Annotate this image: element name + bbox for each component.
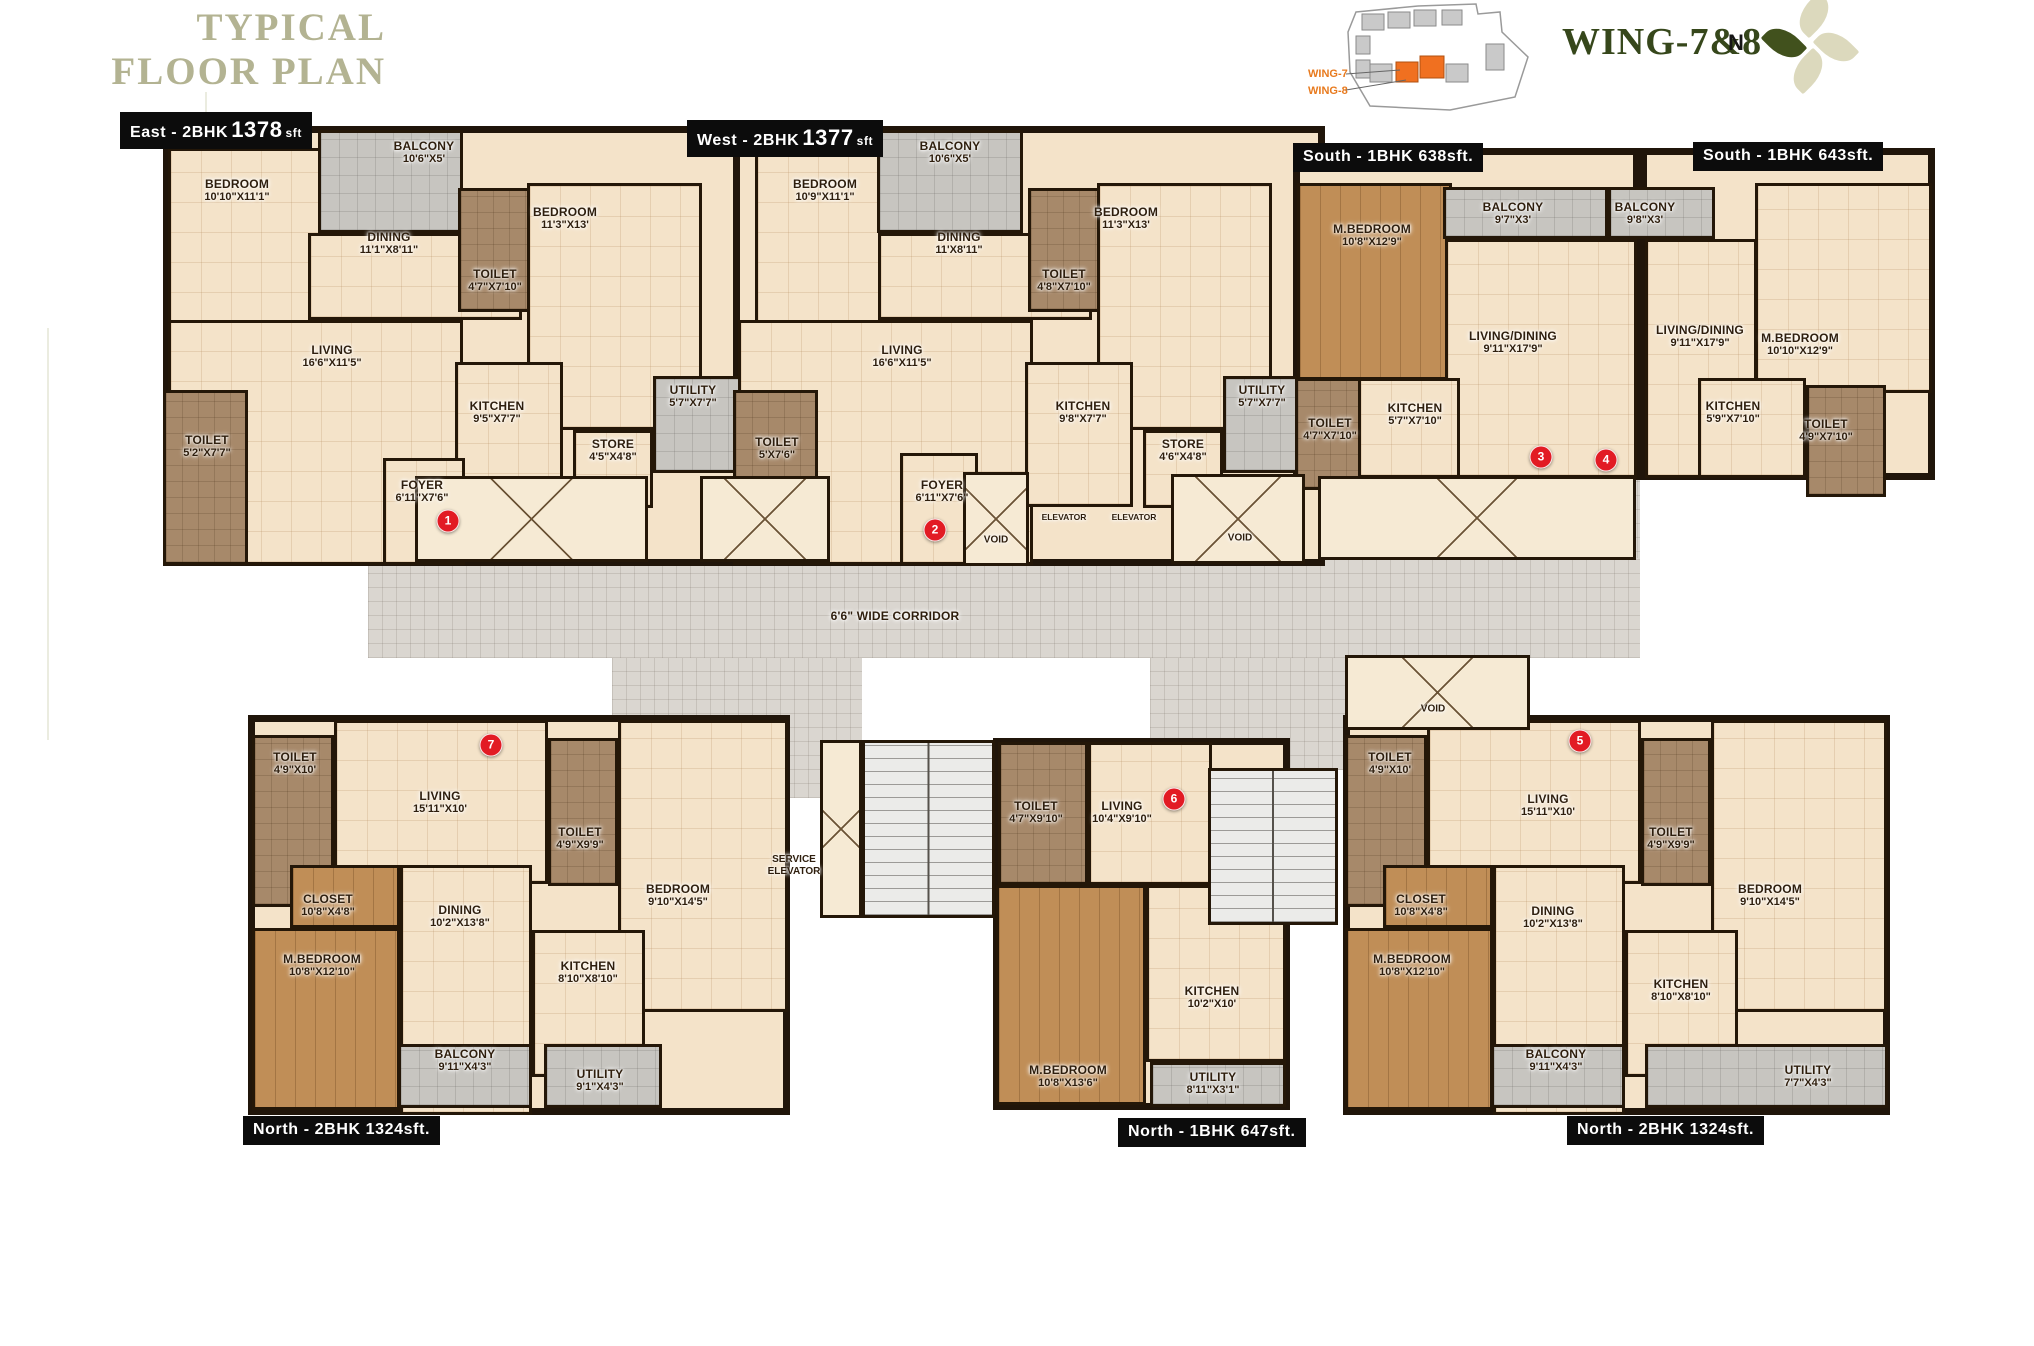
unit-plate-west: West - 2BHK1377sft bbox=[687, 120, 883, 157]
room-label-east-store: STORE4'5"X4'8" bbox=[589, 437, 636, 463]
room-east-toilet bbox=[163, 390, 248, 565]
room-label-s638-balcony: BALCONY9'7"X3' bbox=[1483, 200, 1544, 226]
room-label-n5-bedroom: BEDROOM9'10"X14'5" bbox=[1738, 882, 1802, 908]
room-label-west-foyer: FOYER6'11"X7'6" bbox=[916, 478, 969, 504]
room-label-n7-living: LIVING15'11"X10' bbox=[413, 789, 467, 815]
room-label-east-toilet: TOILET4'7"X7'10" bbox=[468, 267, 522, 293]
room-s638-kitchen bbox=[1358, 378, 1460, 478]
room-label-west-toilet: TOILET4'8"X7'10" bbox=[1037, 267, 1091, 293]
room-label-n5-utility: UTILITY7'7"X4'3" bbox=[1784, 1063, 1831, 1089]
open-box-2 bbox=[700, 476, 830, 562]
room-s638-m-bedroom bbox=[1297, 183, 1452, 380]
room-label-east-utility: UTILITY5'7"X7'7" bbox=[669, 383, 716, 409]
room-label-east-toilet: TOILET5'2"X7'7" bbox=[183, 433, 230, 459]
room-label-west-kitchen: KITCHEN9'8"X7'7" bbox=[1056, 399, 1111, 425]
room-label-s638-toilet: TOILET4'7"X7'10" bbox=[1303, 416, 1357, 442]
room-label-n7-closet: CLOSET10'8"X4'8" bbox=[301, 892, 355, 918]
room-s643-kitchen bbox=[1698, 378, 1806, 478]
room-label-east-living: LIVING16'6"X11'5" bbox=[302, 343, 361, 369]
unit-badge-2: 2 bbox=[924, 519, 947, 542]
void-bottom-label: VOID bbox=[1421, 704, 1445, 715]
room-label-n7-balcony: BALCONY9'11"X4'3" bbox=[435, 1047, 496, 1073]
room-n5-utility bbox=[1645, 1044, 1888, 1108]
room-label-west-toilet: TOILET5'X7'6" bbox=[755, 435, 799, 461]
room-label-n7-toilet: TOILET4'9"X10' bbox=[273, 750, 317, 776]
floor-plan-canvas: 6'6" WIDE CORRIDORBEDROOM10'10"X11'1"BAL… bbox=[0, 0, 2034, 1346]
unit-plate-n1324b: North - 2BHK 1324sft. bbox=[1567, 1116, 1764, 1145]
void-right bbox=[1171, 474, 1305, 564]
keyplan-wing7-label: WING-7 bbox=[1308, 68, 1348, 80]
room-label-n5-kitchen: KITCHEN8'10"X8'10" bbox=[1651, 977, 1711, 1003]
void-left-label: VOID bbox=[984, 535, 1008, 546]
room-label-n5-living: LIVING15'11"X10' bbox=[1521, 792, 1575, 818]
room-label-s643-balcony: BALCONY9'8"X3' bbox=[1615, 200, 1676, 226]
room-label-n6-living: LIVING10'4"X9'10" bbox=[1092, 799, 1152, 825]
stairs-right bbox=[1208, 768, 1338, 925]
room-label-east-bedroom: BEDROOM10'10"X11'1" bbox=[204, 177, 269, 203]
void-right-label: VOID bbox=[1228, 533, 1252, 544]
unit-plate-n1324a: North - 2BHK 1324sft. bbox=[243, 1116, 440, 1145]
room-label-east-dining: DINING11'1"X8'11" bbox=[360, 230, 419, 256]
room-west-toilet bbox=[1028, 188, 1100, 312]
room-label-n6-toilet: TOILET4'7"X9'10" bbox=[1009, 799, 1063, 825]
service-elevator-label: SERVICE ELEVATOR bbox=[755, 854, 833, 878]
room-label-s638-kitchen: KITCHEN5'7"X7'10" bbox=[1388, 401, 1443, 427]
unit-badge-3: 3 bbox=[1530, 446, 1553, 469]
unit-badge-4: 4 bbox=[1595, 449, 1618, 472]
room-n5-toilet bbox=[1641, 738, 1711, 886]
unit-badge-1: 1 bbox=[437, 510, 460, 533]
room-label-n7-utility: UTILITY9'1"X4'3" bbox=[576, 1067, 623, 1093]
room-s638-living-dining bbox=[1445, 239, 1637, 478]
room-label-s638-living-dining: LIVING/DINING9'11"X17'9" bbox=[1469, 329, 1557, 355]
unit-plate-n647: North - 1BHK 647sft. bbox=[1118, 1118, 1306, 1147]
room-label-n5-closet: CLOSET10'8"X4'8" bbox=[1394, 892, 1448, 918]
room-label-n5-toilet: TOILET4'9"X10' bbox=[1368, 750, 1412, 776]
void-left bbox=[963, 472, 1029, 566]
room-label-n6-m-bedroom: M.BEDROOM10'8"X13'6" bbox=[1029, 1063, 1107, 1089]
room-n7-toilet bbox=[548, 738, 618, 886]
room-label-n5-toilet: TOILET4'9"X9'9" bbox=[1647, 825, 1694, 851]
room-label-east-bedroom: BEDROOM11'3"X13' bbox=[533, 205, 597, 231]
room-label-east-kitchen: KITCHEN9'5"X7'7" bbox=[470, 399, 525, 425]
floor-plan-page: TYPICAL FLOOR PLAN WING-7&8 N WING-7 WIN… bbox=[0, 0, 2034, 1346]
void-bottom bbox=[1345, 655, 1530, 730]
corridor-label: 6'6" WIDE CORRIDOR bbox=[831, 609, 960, 623]
room-label-n6-utility: UTILITY8'11"X3'1" bbox=[1187, 1070, 1240, 1096]
unit-plate-s643: South - 1BHK 643sft. bbox=[1693, 142, 1883, 171]
corridor-area-corridor-main bbox=[368, 558, 1640, 658]
unit-badge-7: 7 bbox=[480, 734, 503, 757]
room-label-west-store: STORE4'6"X4'8" bbox=[1159, 437, 1206, 463]
room-label-n7-kitchen: KITCHEN8'10"X8'10" bbox=[558, 959, 618, 985]
unit-plate-s638: South - 1BHK 638sft. bbox=[1293, 143, 1483, 172]
room-label-s643-m-bedroom: M.BEDROOM10'10"X12'9" bbox=[1761, 331, 1839, 357]
room-label-east-foyer: FOYER6'11"X7'6" bbox=[396, 478, 449, 504]
room-label-n5-balcony: BALCONY9'11"X4'3" bbox=[1526, 1047, 1587, 1073]
room-label-n7-bedroom: BEDROOM9'10"X14'5" bbox=[646, 882, 710, 908]
room-label-n7-toilet: TOILET4'9"X9'9" bbox=[556, 825, 603, 851]
room-label-west-utility: UTILITY5'7"X7'7" bbox=[1238, 383, 1285, 409]
room-label-west-balcony: BALCONY10'6"X5' bbox=[920, 139, 981, 165]
room-label-s643-living-dining: LIVING/DINING9'11"X17'9" bbox=[1656, 323, 1744, 349]
room-s643-m-bedroom bbox=[1755, 183, 1932, 393]
room-label-n7-m-bedroom: M.BEDROOM10'8"X12'10" bbox=[283, 952, 361, 978]
room-label-east-balcony: BALCONY10'6"X5' bbox=[394, 139, 455, 165]
room-label-s643-toilet: TOILET4'9"X7'10" bbox=[1799, 417, 1853, 443]
room-label-n7-dining: DINING10'2"X13'8" bbox=[430, 903, 490, 929]
elevator-1-label: ELEVATOR bbox=[1042, 512, 1087, 522]
elevator-2-label: ELEVATOR bbox=[1112, 512, 1157, 522]
room-label-n5-m-bedroom: M.BEDROOM10'8"X12'10" bbox=[1373, 952, 1451, 978]
room-label-west-living: LIVING16'6"X11'5" bbox=[872, 343, 931, 369]
unit-badge-5: 5 bbox=[1569, 730, 1592, 753]
room-east-toilet bbox=[458, 188, 530, 312]
room-label-west-bedroom: BEDROOM11'3"X13' bbox=[1094, 205, 1158, 231]
open-box-3 bbox=[1318, 476, 1636, 560]
unit-plate-east: East - 2BHK1378sft bbox=[120, 112, 312, 149]
room-label-west-dining: DINING11'X8'11" bbox=[935, 230, 982, 256]
room-label-s638-m-bedroom: M.BEDROOM10'8"X12'9" bbox=[1333, 222, 1411, 248]
room-label-n6-kitchen: KITCHEN10'2"X10' bbox=[1185, 984, 1240, 1010]
room-label-west-bedroom: BEDROOM10'9"X11'1" bbox=[793, 177, 857, 203]
room-label-s643-kitchen: KITCHEN5'9"X7'10" bbox=[1706, 399, 1761, 425]
room-label-n5-dining: DINING10'2"X13'8" bbox=[1523, 904, 1583, 930]
stairs-left bbox=[862, 740, 995, 918]
unit-badge-6: 6 bbox=[1163, 788, 1186, 811]
keyplan-wing8-label: WING-8 bbox=[1308, 85, 1348, 97]
